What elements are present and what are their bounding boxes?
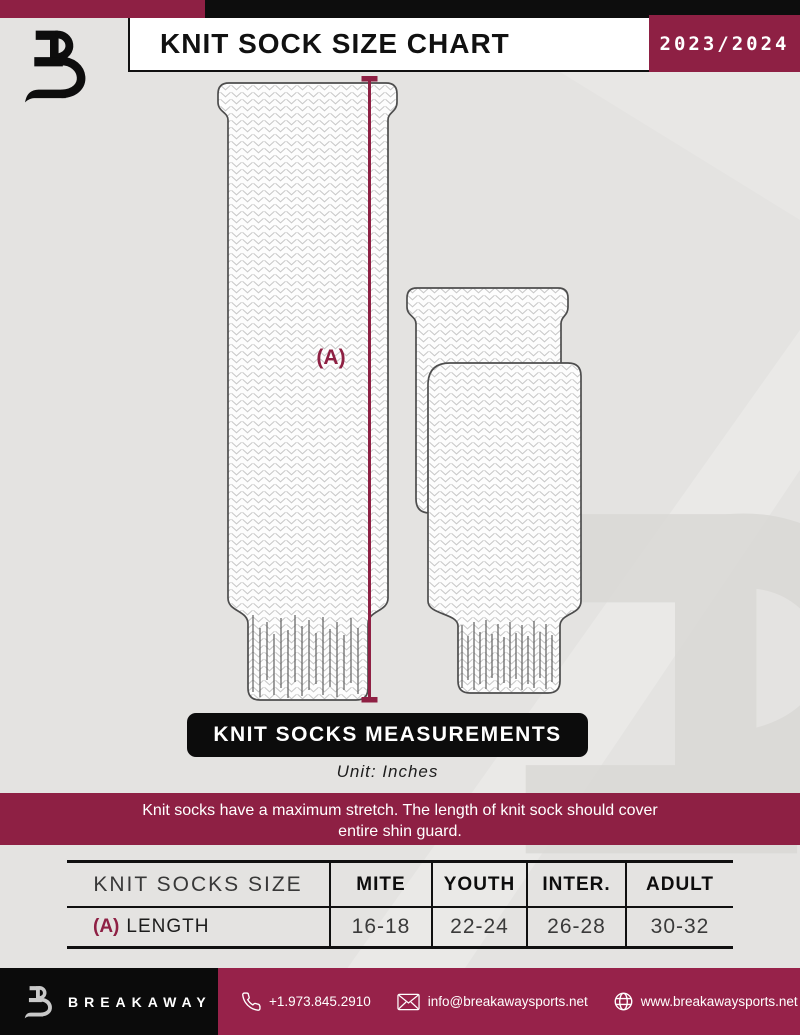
size-table-header-row: KNIT SOCKS SIZE MITE YOUTH INTER. ADULT (67, 860, 733, 908)
footer-website-url: www.breakawaysports.net (641, 994, 798, 1009)
top-accent-strip-maroon (0, 0, 205, 18)
breakaway-b-logo-icon (22, 26, 98, 106)
footer-contact-block: +1.973.845.2910 info@breakawaysports.net… (218, 968, 800, 1035)
background-streak (560, 72, 800, 220)
adult-sock-illustration (428, 363, 581, 693)
length-value-inter: 26-28 (526, 908, 625, 946)
footer-brand-block: BREAKAWAY (0, 968, 218, 1035)
footer: BREAKAWAY +1.973.845.2910 info@breakaway… (0, 968, 800, 1035)
column-header-mite: MITE (329, 863, 431, 906)
page-title: KNIT SOCK SIZE CHART (160, 18, 510, 70)
size-table: KNIT SOCKS SIZE MITE YOUTH INTER. ADULT … (67, 860, 733, 949)
knit-sock-size-chart-flyer: (A) KNIT SOCK SIZE CHART 2023/2024 KNIT … (0, 0, 800, 1035)
breakaway-b-logo-icon (24, 984, 57, 1020)
stretch-note-line1: Knit socks have a maximum stretch. The l… (0, 800, 800, 821)
globe-icon (614, 992, 633, 1011)
footer-website[interactable]: www.breakawaysports.net (614, 992, 798, 1011)
footer-brand-name: BREAKAWAY (68, 994, 212, 1010)
length-value-mite: 16-18 (329, 908, 431, 946)
column-header-youth: YOUTH (431, 863, 526, 906)
length-value-adult: 30-32 (625, 908, 733, 946)
row-name-length: LENGTH (126, 916, 209, 938)
phone-icon (242, 992, 261, 1011)
footer-email-address: info@breakawaysports.net (428, 994, 588, 1009)
stretch-note: Knit socks have a maximum stretch. The l… (0, 793, 800, 845)
size-table-title: KNIT SOCKS SIZE (67, 863, 329, 906)
footer-phone-number: +1.973.845.2910 (269, 994, 371, 1009)
season-badge: 2023/2024 (649, 15, 800, 72)
column-header-adult: ADULT (625, 863, 733, 906)
size-table-length-row: (A) LENGTH 16-18 22-24 26-28 30-32 (67, 908, 733, 949)
row-label-length: (A) LENGTH (67, 908, 329, 946)
column-header-inter: INTER. (526, 863, 625, 906)
length-value-youth: 22-24 (431, 908, 526, 946)
measurements-banner: KNIT SOCKS MEASUREMENTS (187, 713, 588, 757)
unit-label: Unit: Inches (187, 762, 588, 782)
stretch-note-line2: entire shin guard. (0, 821, 800, 842)
footer-phone[interactable]: +1.973.845.2910 (242, 992, 371, 1011)
envelope-icon (397, 993, 420, 1011)
row-key-a: (A) (93, 916, 119, 938)
footer-email[interactable]: info@breakawaysports.net (397, 993, 588, 1011)
measurement-label-a: (A) (316, 346, 345, 369)
